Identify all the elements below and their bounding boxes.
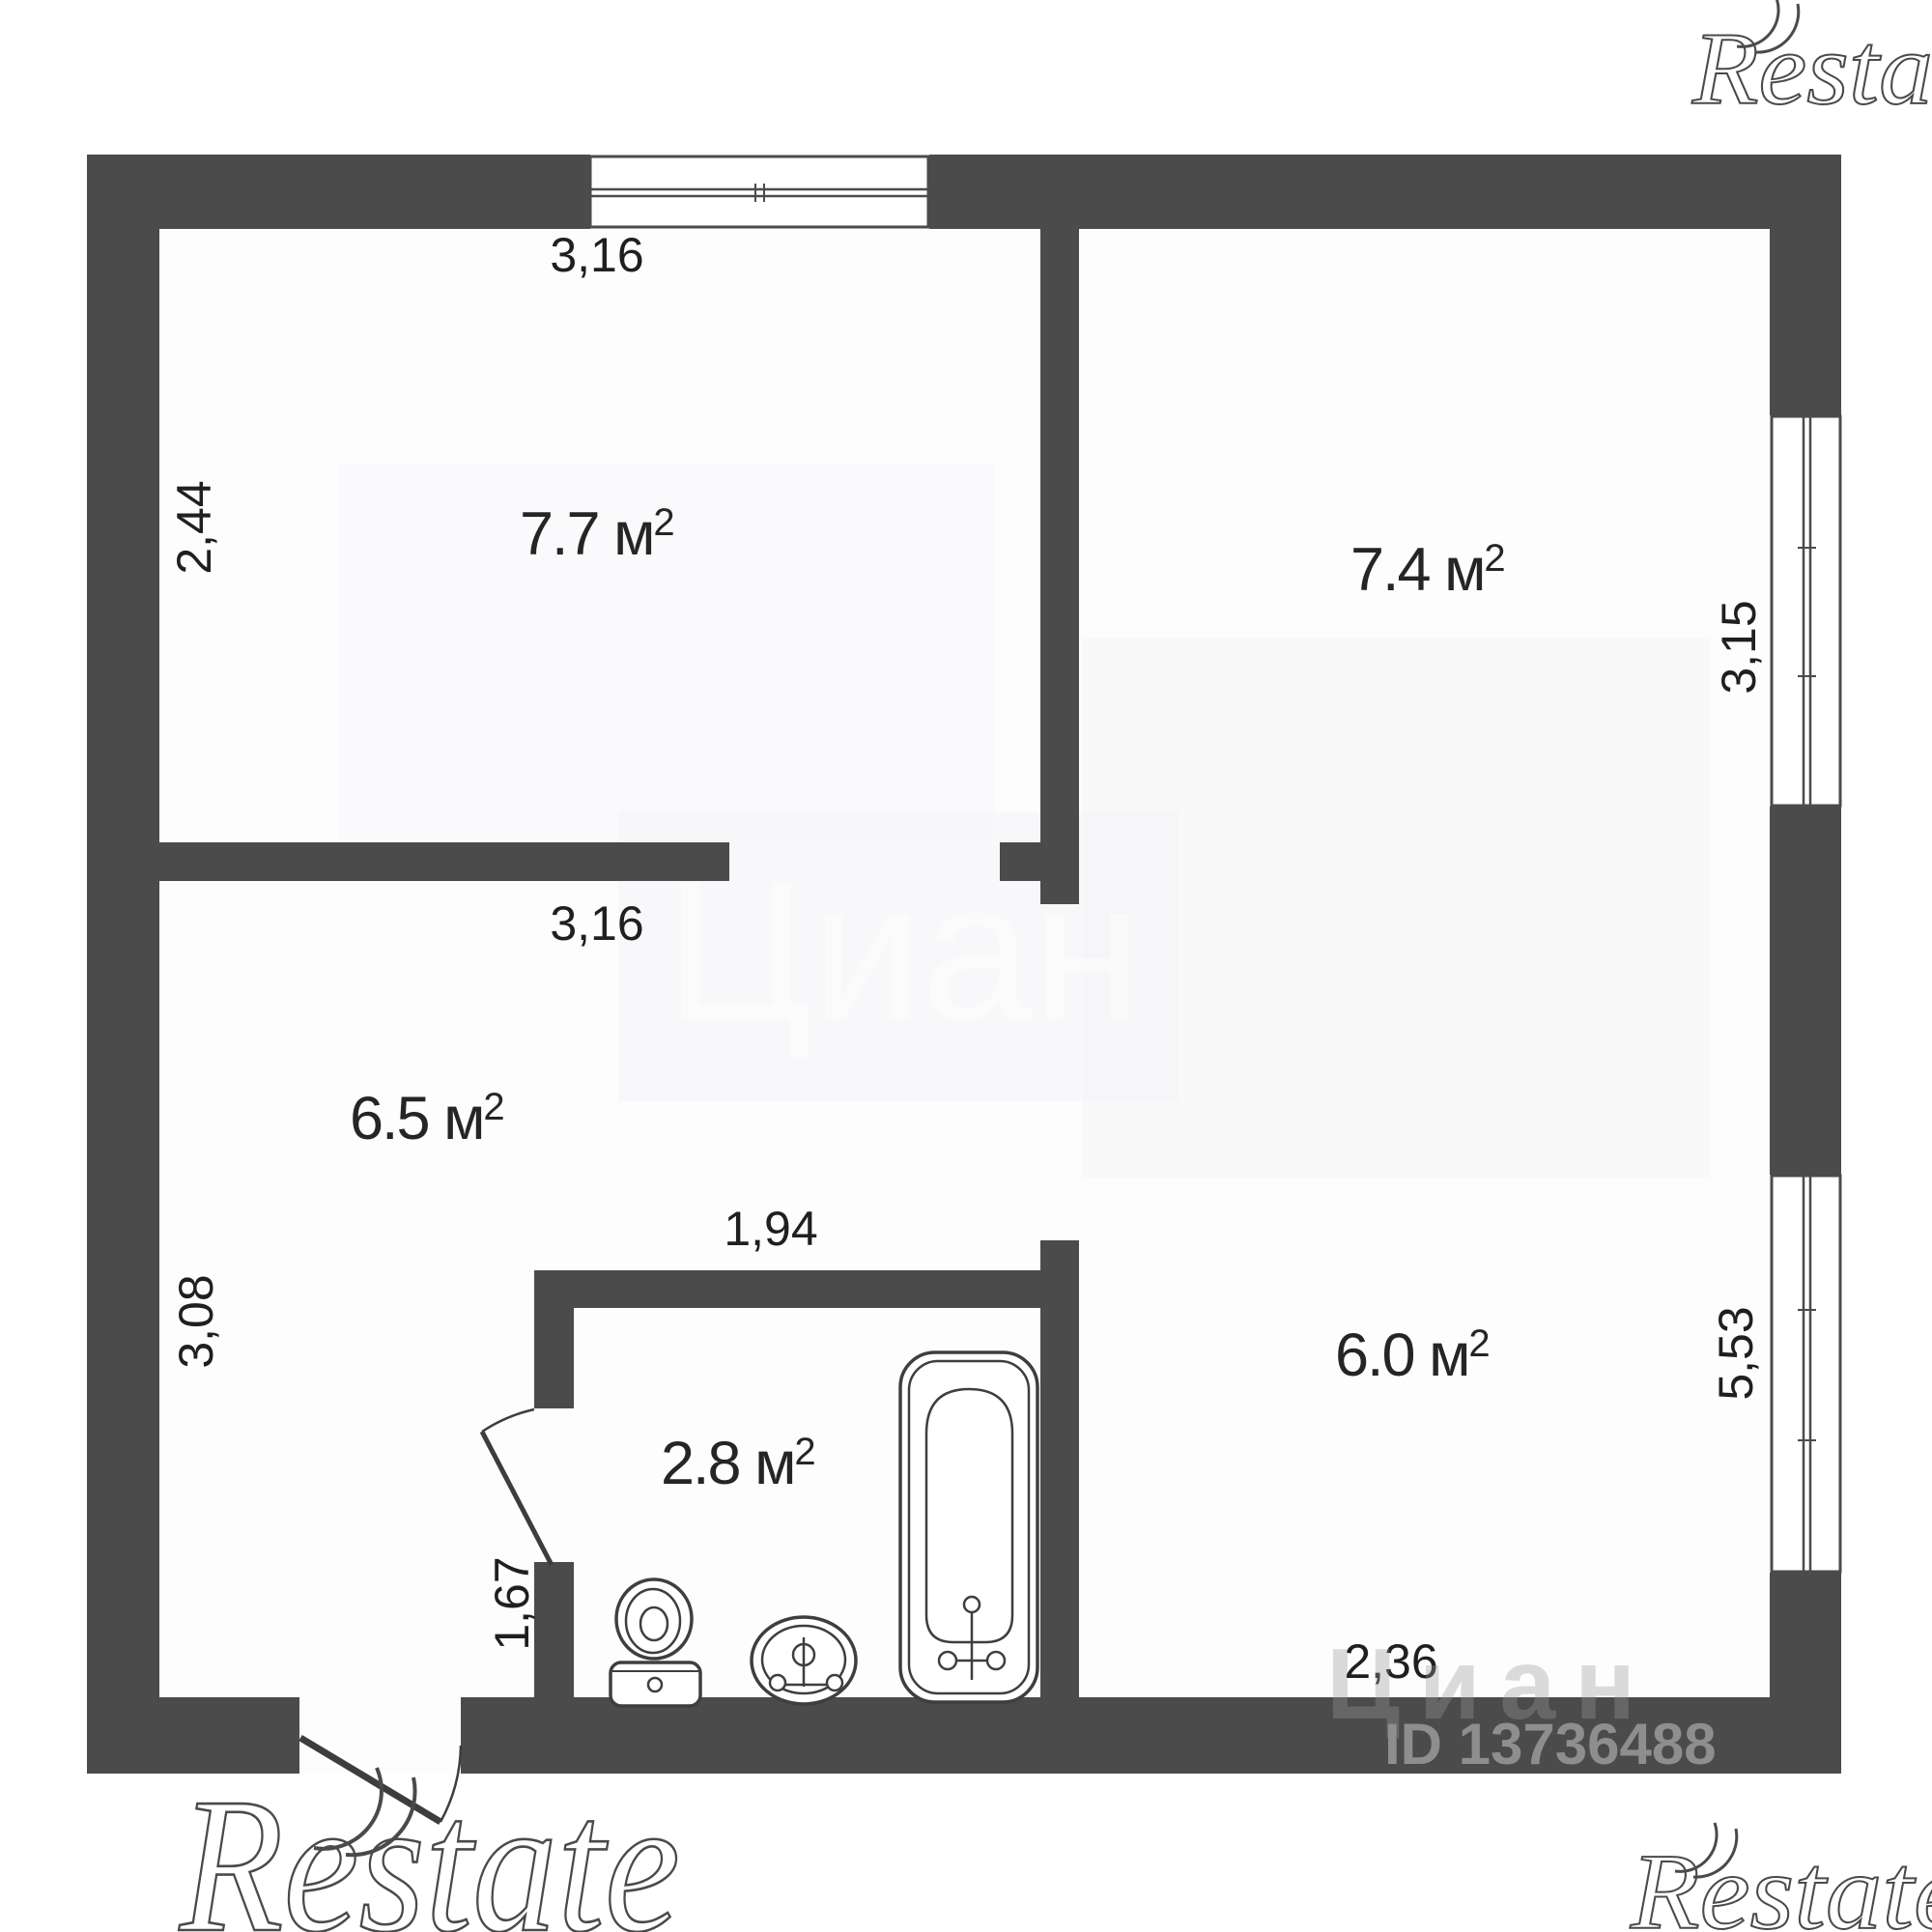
- svg-text:2,44: 2,44: [167, 480, 221, 574]
- svg-text:Restate: Restate: [178, 1759, 680, 1932]
- svg-text:Restate: Restate: [1691, 13, 1932, 127]
- svg-text:ID 13736488: ID 13736488: [1384, 1712, 1717, 1776]
- svg-text:1,67: 1,67: [485, 1556, 539, 1650]
- svg-text:2.8 м2: 2.8 м2: [661, 1430, 814, 1497]
- svg-text:5,53: 5,53: [1709, 1306, 1763, 1400]
- svg-text:6.0 м2: 6.0 м2: [1335, 1321, 1489, 1389]
- svg-text:Restate: Restate: [1630, 1833, 1932, 1932]
- svg-text:Циан: Циан: [665, 840, 1141, 1062]
- svg-text:3,08: 3,08: [169, 1274, 223, 1368]
- svg-text:7.7 м2: 7.7 м2: [520, 500, 673, 568]
- svg-text:3,15: 3,15: [1712, 600, 1766, 694]
- svg-text:1,94: 1,94: [724, 1202, 817, 1256]
- svg-text:7.4 м2: 7.4 м2: [1350, 536, 1504, 604]
- svg-text:3,16: 3,16: [550, 228, 643, 282]
- svg-text:6.5 м2: 6.5 м2: [350, 1085, 503, 1152]
- svg-text:3,16: 3,16: [550, 896, 643, 951]
